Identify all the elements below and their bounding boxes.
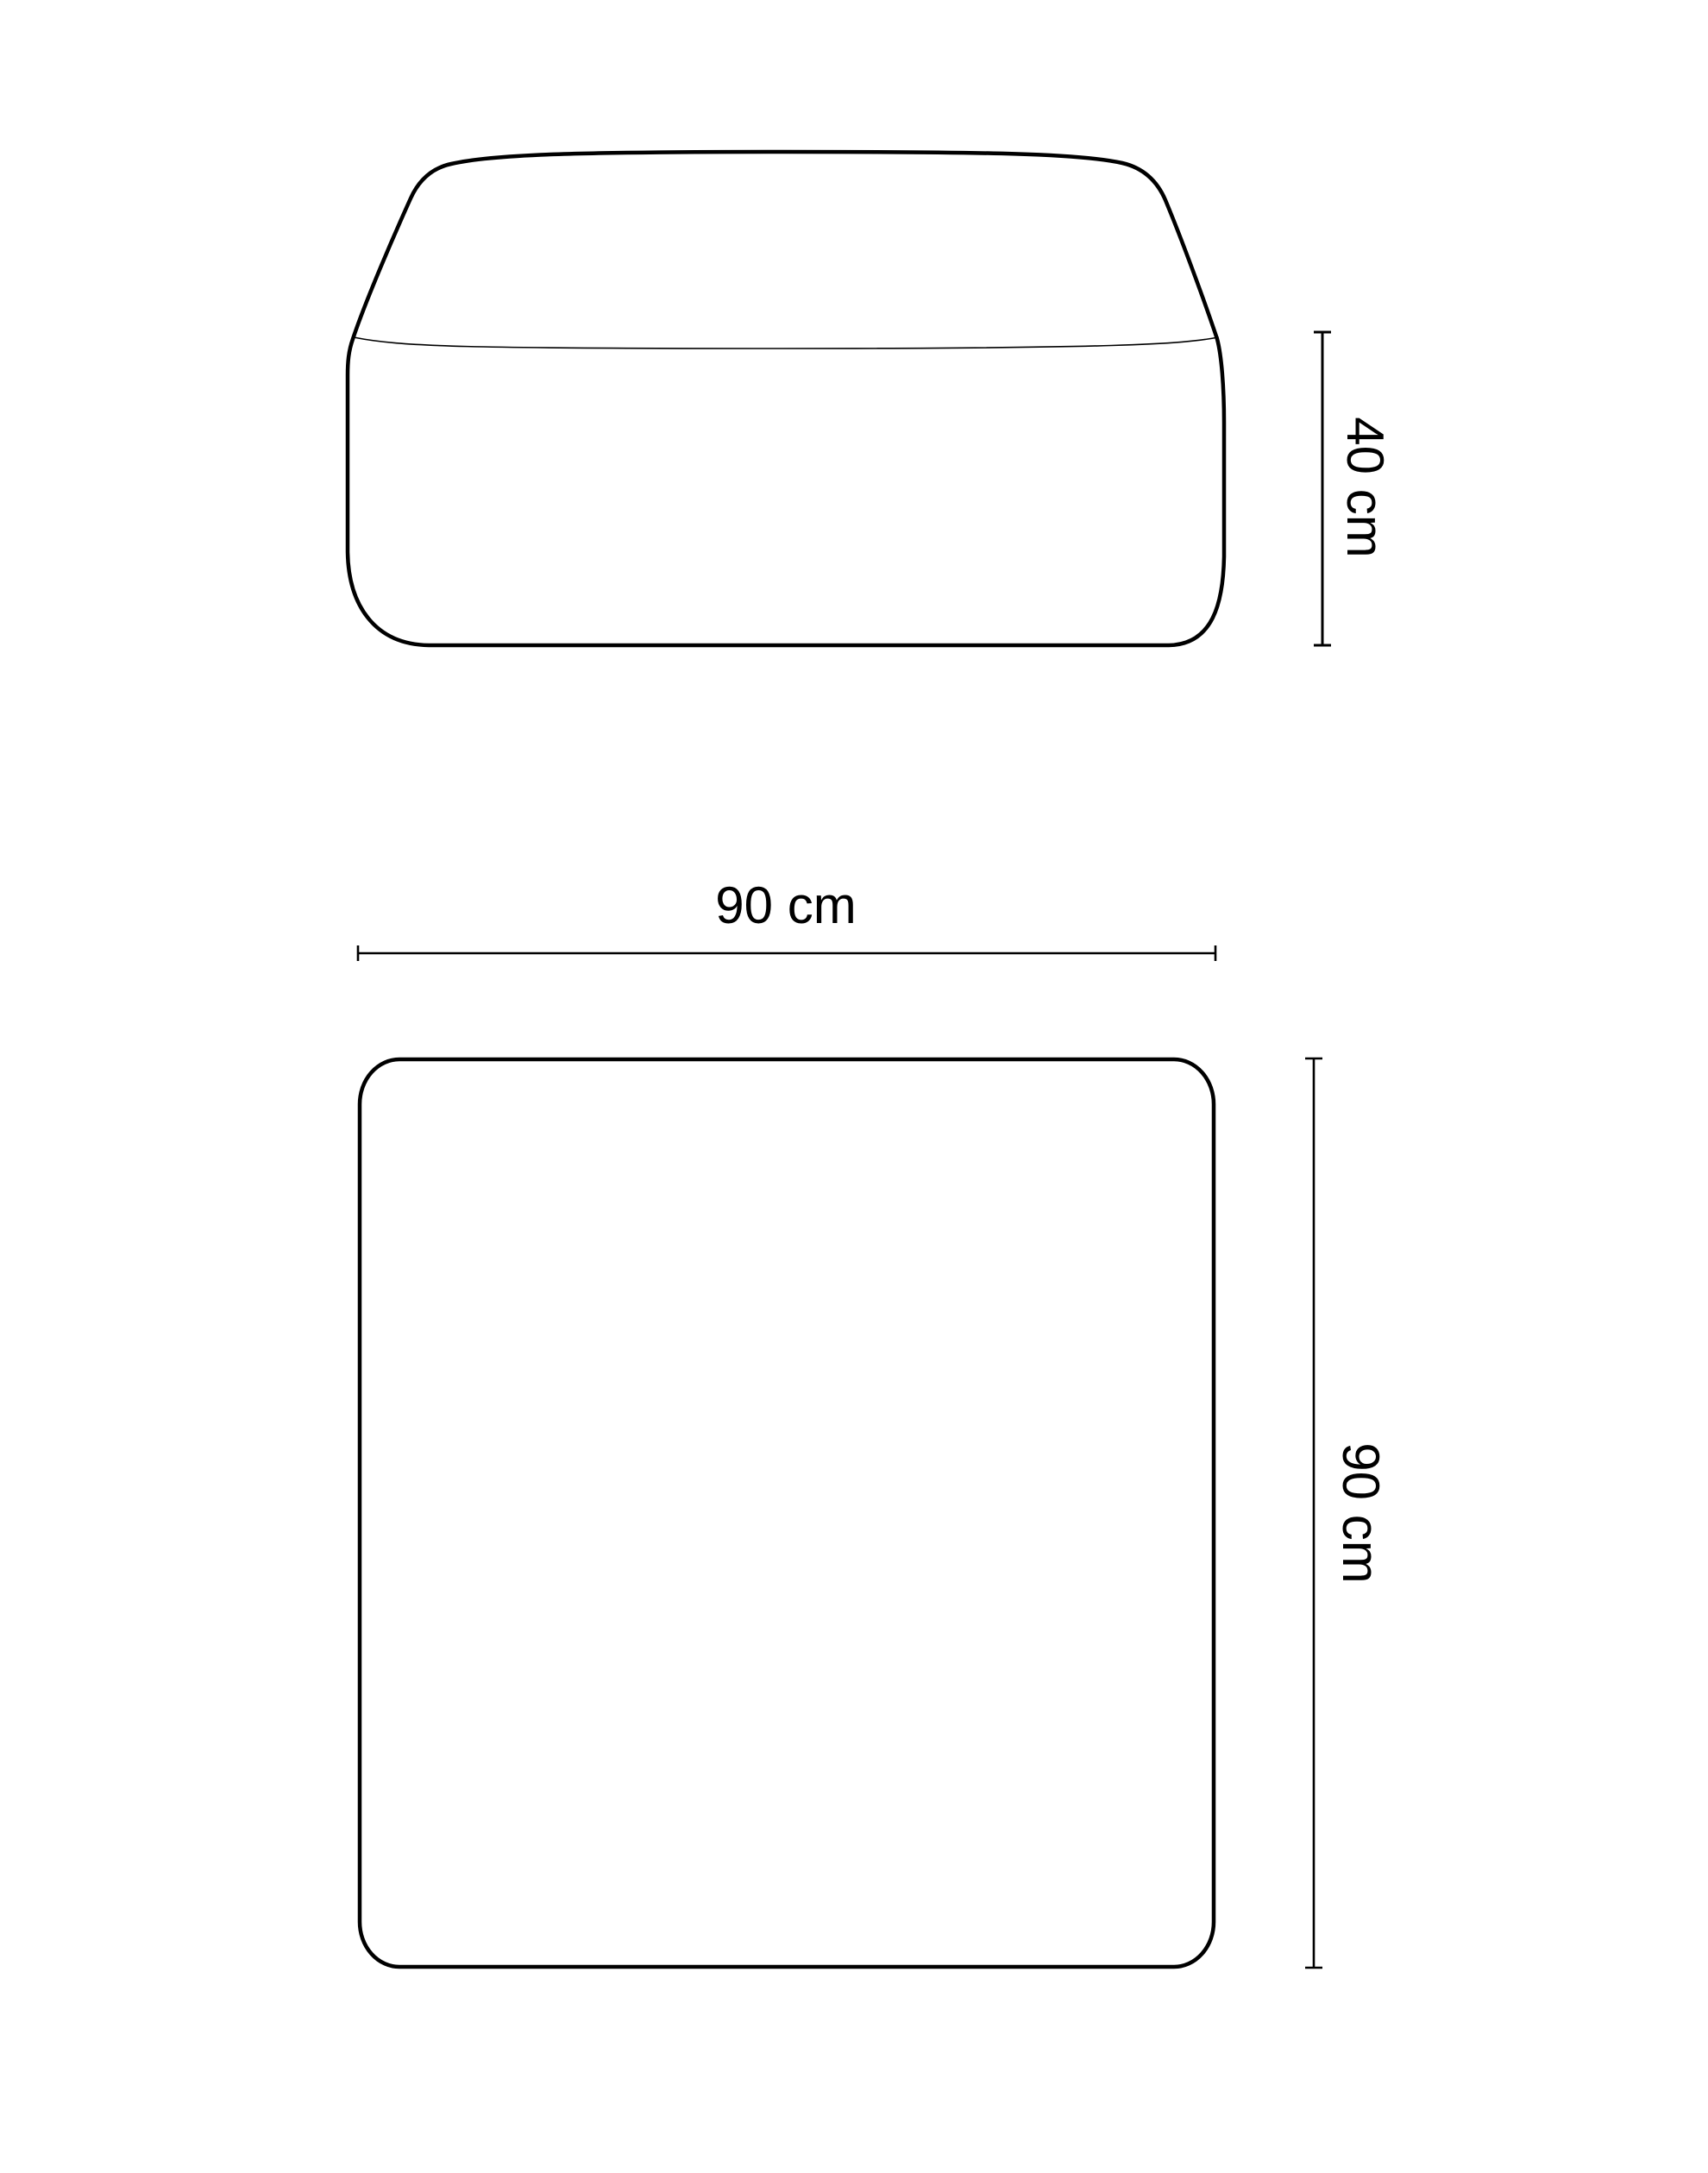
drawing-page: 40 cm 90 cm 90 cm: [0, 0, 1708, 2173]
height-dimension-line: [1314, 332, 1331, 645]
pouf-front-view-outline: [348, 152, 1224, 645]
dimension-drawing-canvas: [0, 0, 1708, 2173]
width-dimension-label: 90 cm: [656, 878, 915, 933]
width-dimension-line: [358, 945, 1215, 961]
pouf-top-view: [360, 1059, 1214, 1967]
depth-dimension-label: 90 cm: [1333, 1384, 1388, 1642]
pouf-front-seam-line: [354, 337, 1218, 349]
pouf-front-view: [348, 152, 1224, 645]
pouf-top-view-outline: [360, 1059, 1214, 1967]
depth-dimension-line: [1305, 1058, 1322, 1968]
height-dimension-label: 40 cm: [1337, 358, 1392, 617]
